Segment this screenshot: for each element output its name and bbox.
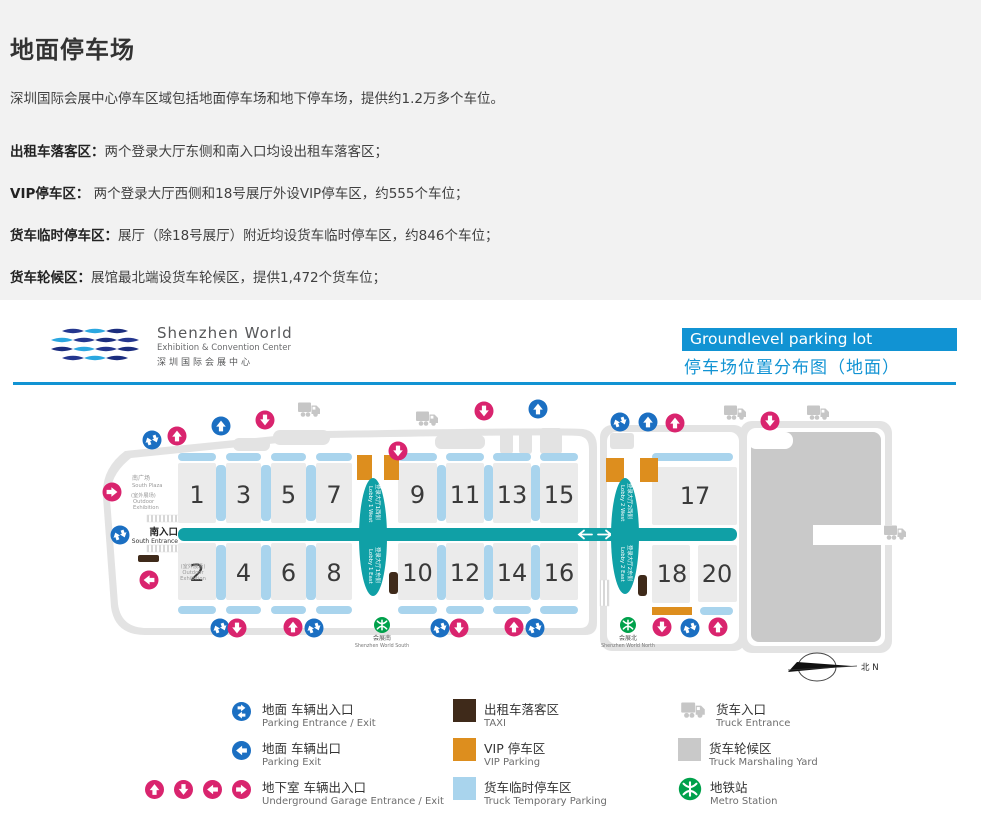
underground-down-badge <box>653 618 672 637</box>
underground-down-badge <box>761 412 780 431</box>
underground-down-badge <box>475 402 494 421</box>
south-entrance-cn: 南入口 <box>149 526 178 538</box>
underground-right-badge <box>103 483 122 502</box>
logo-cn: 深圳国际会展中心 <box>157 355 293 368</box>
metro-station-north-icon <box>620 617 636 633</box>
zone-vip: VIP停车区： 两个登录大厅西侧和18号展厅外设VIP停车区，约555个车位； <box>10 184 515 205</box>
legend-cn: 货车临时停车区 <box>484 777 607 796</box>
legend-en: TAXI <box>484 718 559 729</box>
banner-title-en: Groundlevel parking lot <box>682 328 957 351</box>
south-plaza-cn: 南广场 <box>132 474 150 482</box>
underground-up-badge <box>505 618 524 637</box>
south-plaza-en: South Plaza <box>132 483 162 489</box>
outdoor2-en2: Exhibition <box>180 576 206 582</box>
truck-temporary-square-icon <box>453 777 476 800</box>
lobby-2: 登录大厅2西侧 Lobby 2 West 登录大厅2东侧 Lobby 2 Eas… <box>611 478 639 594</box>
legend-cn: 地铁站 <box>710 777 777 796</box>
underground-left-icon <box>200 777 225 802</box>
hall-number: 17 <box>680 482 711 510</box>
parking-up-badge <box>639 413 658 432</box>
page-title: 地面停车场 <box>10 30 961 65</box>
zone-truck-temp: 货车临时停车区：展厅（除18号展厅）附近均设货车临时停车区，约846个车位； <box>10 226 515 247</box>
metro-station-icon <box>678 777 702 801</box>
truck-icon <box>884 526 906 540</box>
central-corridor <box>178 528 737 541</box>
lobby1-east-cn: 登录大厅1东侧 <box>374 547 382 583</box>
map-legend: 地面 车辆出入口Parking Entrance / Exit 地面 车辆出口P… <box>0 695 981 811</box>
underground-left-badge <box>140 571 159 590</box>
zone-taxi-label: 出租车落客区： <box>10 144 105 160</box>
hall-number: 20 <box>702 560 733 588</box>
south-entrance-en: South Entrance <box>132 538 179 545</box>
zone-vip-text: 两个登录大厅西侧和18号展厅外设VIP停车区，约555个车位； <box>89 186 468 202</box>
parking-entrance-exit-badge <box>526 619 545 638</box>
legend-column-trucks: 货车入口Truck Entrance 货车轮候区Truck Marshaling… <box>678 699 818 816</box>
underground-up-badge <box>666 414 685 433</box>
legend-column-entrances: 地面 车辆出入口Parking Entrance / Exit 地面 车辆出口P… <box>126 699 444 816</box>
legend-parking-entrance-exit: 地面 车辆出入口Parking Entrance / Exit <box>126 699 444 729</box>
lobby1-west-cn: 登录大厅1西侧 <box>374 484 382 520</box>
parking-exit-icon <box>229 738 254 763</box>
hall-number: 1 <box>189 481 204 509</box>
metro-station-south-icon <box>374 617 390 633</box>
metro-south-cn: 会展南 <box>373 634 391 642</box>
legend-truck-yard: 货车轮候区Truck Marshaling Yard <box>678 738 818 768</box>
legend-underground-entrance-exit: 地下室 车辆出入口Underground Garage Entrance / E… <box>126 777 444 807</box>
hall-number: 5 <box>281 481 296 509</box>
parking-entrance-exit-badge <box>305 619 324 638</box>
legend-cn: VIP 停车区 <box>484 738 545 757</box>
legend-cn: 地下室 车辆出入口 <box>262 777 444 796</box>
parking-entrance-exit-badge <box>611 413 630 432</box>
parking-entrance-exit-icon <box>229 699 254 724</box>
legend-column-zones: 出租车落客区TAXI VIP 停车区VIP Parking 货车临时停车区Tru… <box>453 699 607 816</box>
north-label: 北 N <box>861 663 879 673</box>
outdoor-en2: Exhibition <box>133 505 159 511</box>
hall-number: 10 <box>402 559 433 587</box>
hall-number: 18 <box>657 560 688 588</box>
zone-vip-label: VIP停车区： <box>10 186 89 202</box>
zone-truck-temp-text: 展厅（除18号展厅）附近均设货车临时停车区，约846个车位； <box>118 228 498 244</box>
hall-number: 15 <box>544 481 575 509</box>
intro-panel: 地面停车场 深圳国际会展中心停车区域包括地面停车场和地下停车场，提供约1.2万多… <box>0 0 981 300</box>
underground-down-badge <box>228 619 247 638</box>
logo-subtitle: Exhibition & Convention Center <box>157 343 293 353</box>
legend-en: Parking Exit <box>262 757 341 768</box>
outdoor-cn: (室外展场) <box>131 491 156 499</box>
hall-number: 11 <box>450 481 481 509</box>
map-banner: Groundlevel parking lot 停车场位置分布图（地面） <box>682 328 957 380</box>
shenzhen-world-logo[interactable]: Shenzhen World Exhibition & Convention C… <box>48 324 293 368</box>
truck-icon <box>724 406 746 420</box>
hall-number: 7 <box>326 481 341 509</box>
legend-vip: VIP 停车区VIP Parking <box>453 738 607 768</box>
legend-cn: 货车入口 <box>716 699 790 718</box>
lobby2-west-en: Lobby 2 West <box>619 485 625 521</box>
taxi-square-icon <box>453 699 476 722</box>
map-wrap: 登录大厅1西侧 Lobby 1 West 登录大厅1东侧 Lobby 1 Eas… <box>95 385 981 695</box>
lobby2-east-cn: 登录大厅2东侧 <box>626 545 634 581</box>
underground-down-badge <box>389 442 408 461</box>
blue-divider <box>13 382 956 385</box>
legend-en: Parking Entrance / Exit <box>262 718 376 729</box>
intro-text: 深圳国际会展中心停车区域包括地面停车场和地下停车场，提供约1.2万多个车位。 <box>10 89 515 110</box>
hall-number: 4 <box>236 559 251 587</box>
vip-square-icon <box>453 738 476 761</box>
hall-number: 16 <box>544 559 575 587</box>
legend-cn: 地面 车辆出口 <box>262 738 341 757</box>
lobby2-west-cn: 登录大厅2西侧 <box>626 483 634 519</box>
parking-entrance-exit-badge <box>143 431 162 450</box>
truck-icon <box>298 403 320 417</box>
hall-number: 8 <box>326 559 341 587</box>
truck-icon <box>807 406 829 420</box>
underground-down-badge <box>450 619 469 638</box>
legend-en: Truck Entrance <box>716 718 790 729</box>
legend-truck-entrance: 货车入口Truck Entrance <box>678 699 818 729</box>
hall-number: 3 <box>236 481 251 509</box>
underground-up-icon <box>142 777 167 802</box>
banner-title-cn: 停车场位置分布图（地面） <box>682 351 957 380</box>
underground-down-icon <box>171 777 196 802</box>
legend-cn: 货车轮候区 <box>709 738 818 757</box>
truck-entrance-icon <box>678 699 708 722</box>
brand-row: Shenzhen World Exhibition & Convention C… <box>0 300 981 385</box>
hall-number: 6 <box>281 559 296 587</box>
zone-truck-yard-label: 货车轮候区： <box>10 270 91 286</box>
legend-cn: 地面 车辆出入口 <box>262 699 376 718</box>
legend-en: Truck Temporary Parking <box>484 796 607 807</box>
hall-number: 14 <box>497 559 528 587</box>
legend-en: Underground Garage Entrance / Exit <box>262 796 444 807</box>
legend-parking-exit: 地面 车辆出口Parking Exit <box>126 738 444 768</box>
compass: 北 N <box>788 653 879 681</box>
zone-truck-yard: 货车轮候区：展馆最北端设货车轮候区，提供1,472个货车位； <box>10 268 515 289</box>
metro-north-cn: 会展北 <box>619 634 637 642</box>
parking-up-badge <box>212 417 231 436</box>
parking-map: 登录大厅1西侧 Lobby 1 West 登录大厅1东侧 Lobby 1 Eas… <box>95 385 960 695</box>
truck-yard-square-icon <box>678 738 701 761</box>
zone-taxi-text: 两个登录大厅东侧和南入口均设出租车落客区； <box>105 144 389 160</box>
hall-number: 12 <box>450 559 481 587</box>
underground-right-icon <box>229 777 254 802</box>
metro-south-en: Shenzhen World South <box>355 643 409 649</box>
legend-taxi: 出租车落客区TAXI <box>453 699 607 729</box>
logo-name: Shenzhen World <box>157 324 293 342</box>
hall-number: 9 <box>410 481 425 509</box>
outdoor2-cn: (室外展场) <box>181 562 206 570</box>
legend-cn: 出租车落客区 <box>484 699 559 718</box>
parking-up-badge <box>529 400 548 419</box>
lobby-1: 登录大厅1西侧 Lobby 1 West 登录大厅1东侧 Lobby 1 Eas… <box>359 478 387 596</box>
underground-up-badge <box>284 618 303 637</box>
logo-text: Shenzhen World Exhibition & Convention C… <box>157 324 293 368</box>
zone-taxi: 出租车落客区：两个登录大厅东侧和南入口均设出租车落客区； <box>10 142 515 163</box>
legend-truck-temporary: 货车临时停车区Truck Temporary Parking <box>453 777 607 807</box>
underground-down-badge <box>256 411 275 430</box>
legend-en: Metro Station <box>710 796 777 807</box>
underground-up-badge <box>709 618 728 637</box>
parking-entrance-exit-badge <box>681 619 700 638</box>
legend-en: VIP Parking <box>484 757 545 768</box>
lobby1-west-en: Lobby 1 West <box>367 486 373 522</box>
south-entrance-badge <box>111 526 130 545</box>
metro-north-en: Shenzhen World North <box>601 643 655 649</box>
truck-icon <box>416 412 438 426</box>
underground-up-badge <box>168 427 187 446</box>
zone-truck-temp-label: 货车临时停车区： <box>10 228 118 244</box>
parking-entrance-exit-badge <box>211 619 230 638</box>
legend-metro: 地铁站Metro Station <box>678 777 818 807</box>
logo-mark-icon <box>48 324 143 368</box>
parking-entrance-exit-badge <box>431 619 450 638</box>
zone-truck-yard-text: 展馆最北端设货车轮候区，提供1,472个货车位； <box>91 270 386 286</box>
hall-number: 13 <box>497 481 528 509</box>
lobby1-east-en: Lobby 1 East <box>367 549 373 584</box>
legend-en: Truck Marshaling Yard <box>709 757 818 768</box>
lobby2-east-en: Lobby 2 East <box>619 547 625 582</box>
